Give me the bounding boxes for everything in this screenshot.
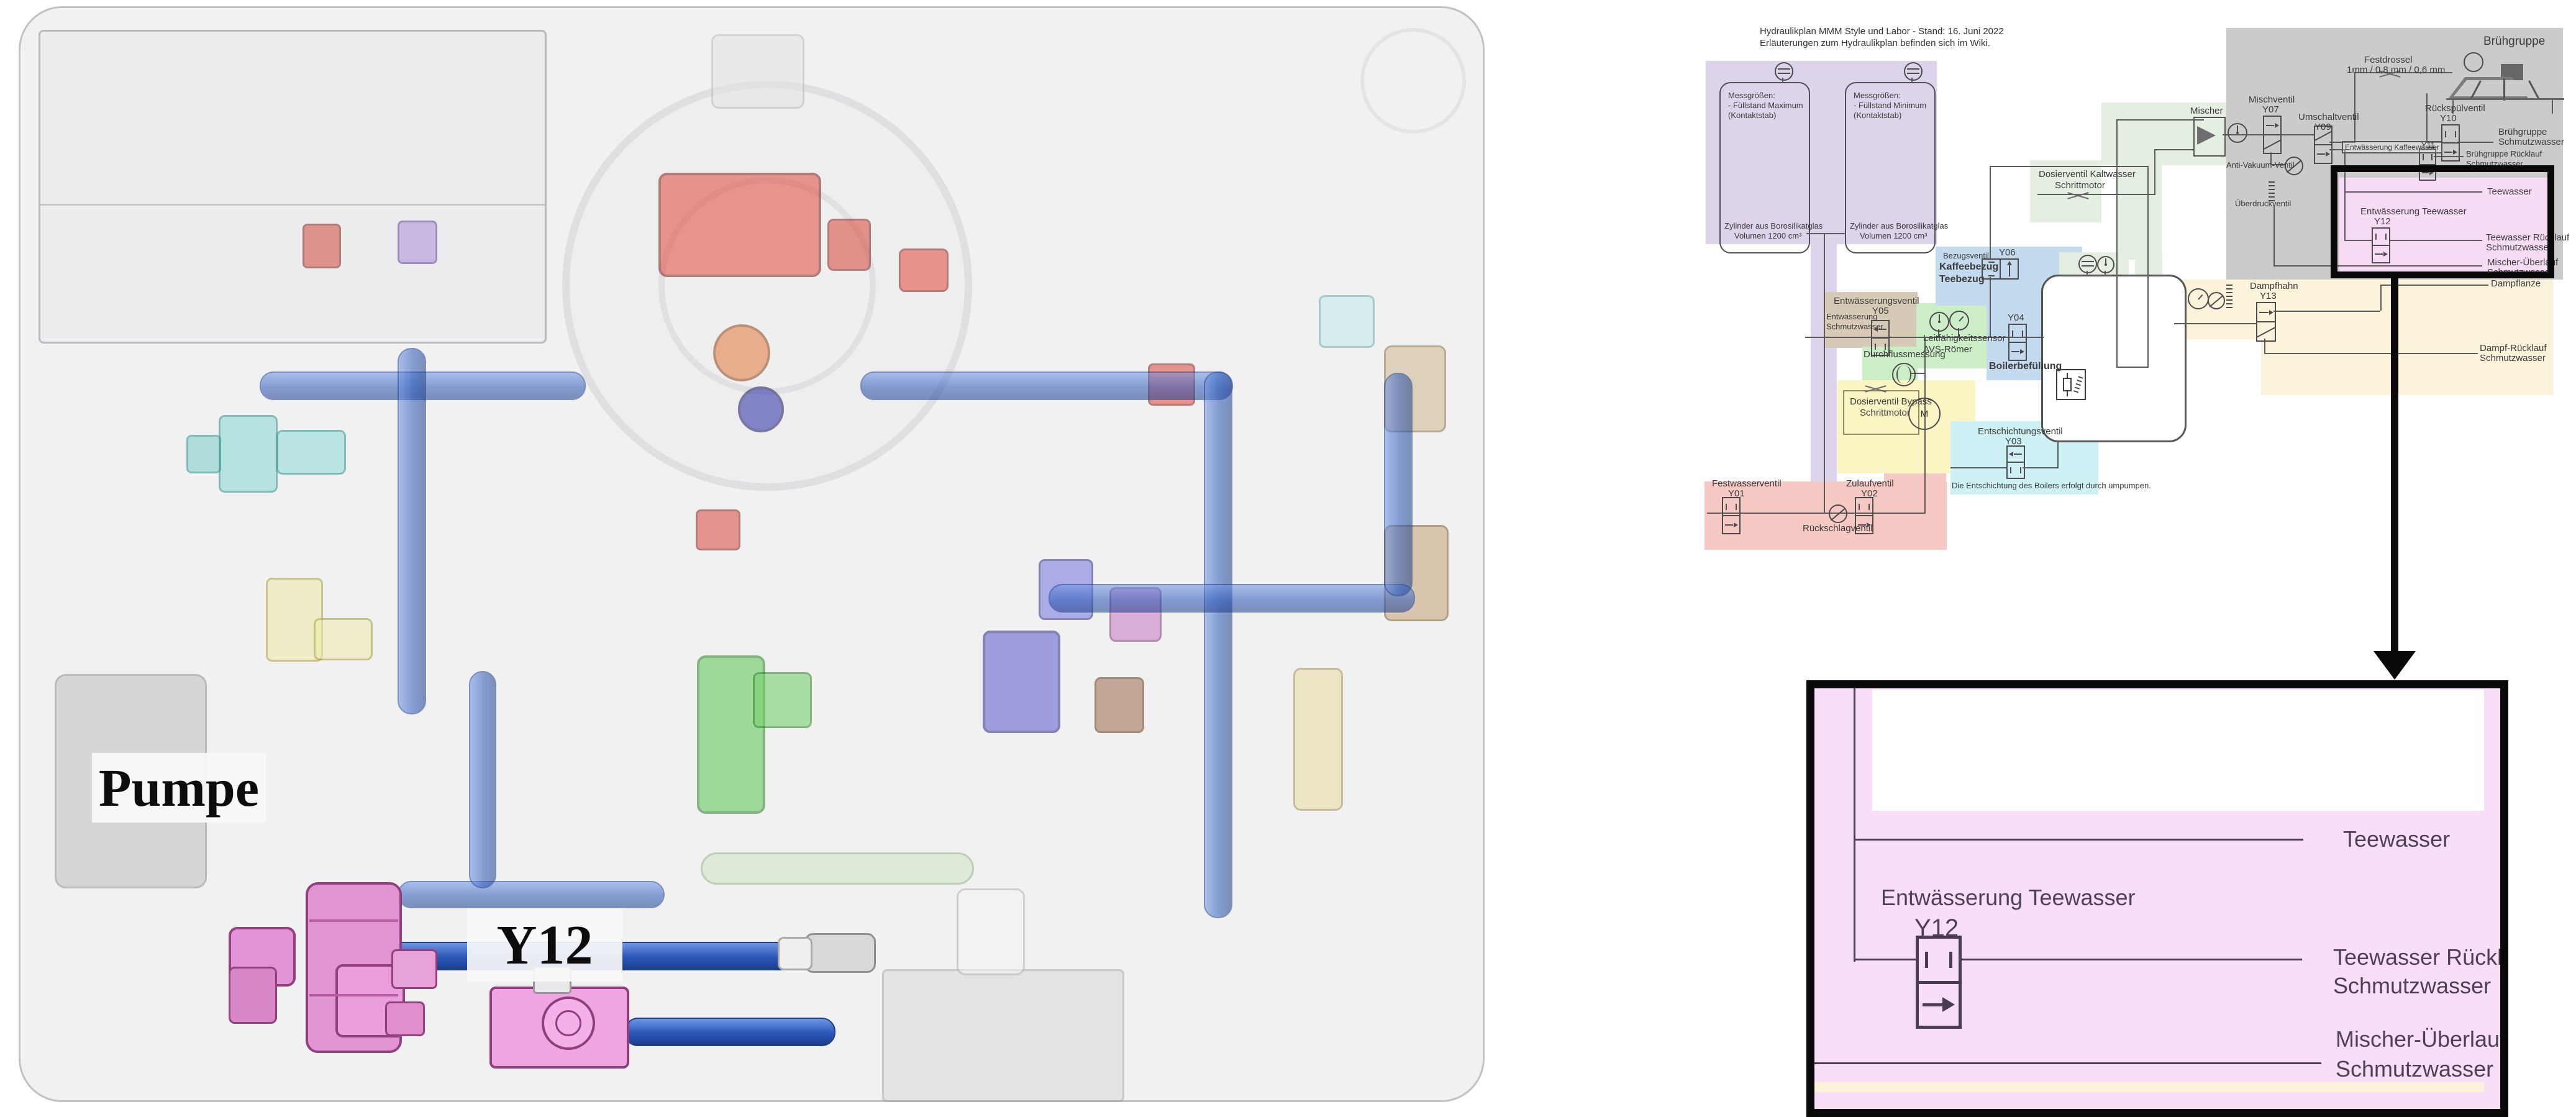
pump-ring-1 — [309, 919, 398, 922]
detail-tea-return-2: Schmutzwasser — [2333, 973, 2491, 999]
valve-y01 — [1722, 497, 1741, 534]
corner-circle — [1360, 28, 1466, 134]
bypass-label-1: Dosierventil Bypass — [1850, 396, 1932, 408]
red-fitting-center — [696, 509, 740, 550]
detail-tea-return-1: Teewasser Rücklauf — [2333, 944, 2508, 970]
teal-fitting-b — [276, 430, 346, 475]
yellow-fitting-b — [314, 618, 373, 660]
detail-overflow-line — [1814, 1062, 2321, 1064]
pressure-sensor-icon — [1929, 312, 1949, 332]
valve-cell — [1919, 984, 1959, 1026]
brewgroup-strut — [2503, 78, 2505, 101]
contact-rod-icon — [1775, 62, 1793, 81]
pipe-line — [1950, 467, 2006, 468]
conductivity-label-1: Leitfähigkeitssensor — [1923, 333, 2006, 344]
detail-teewasser-line — [1854, 839, 2303, 841]
y01-label: Festwasserventil — [1712, 478, 1782, 490]
pipe-blue-vert-right — [1204, 372, 1232, 918]
indigo-block — [983, 631, 1060, 733]
y04-label: Boilerbefüllung — [1989, 360, 2062, 372]
bypass-label-2: Schrittmotor — [1860, 408, 1910, 419]
detail-valve-y12 — [1916, 936, 1962, 1029]
red-valve-block — [658, 173, 821, 277]
tank-left-measures: Messgrößen: — [1728, 91, 1775, 101]
highlight-box — [2331, 165, 2554, 278]
pipe-line — [2116, 119, 2118, 275]
valve-cell — [2009, 343, 2026, 360]
flow-arrow-head — [1942, 997, 1955, 1012]
pipe-blue-lower-left — [398, 881, 665, 908]
y06-tea: Teebezug — [1939, 273, 1985, 285]
detail-tea-supply: Teewasser — [2343, 826, 2450, 852]
brewgroup-trapezoid-inner — [2454, 80, 2528, 96]
y02-id: Y02 — [1861, 488, 1878, 499]
pipe-line — [2354, 72, 2355, 142]
pip e-line — [2380, 285, 2382, 311]
steam-check-icon — [2208, 292, 2225, 309]
white-connector-ring — [778, 937, 812, 970]
pipe-line — [2117, 119, 2204, 121]
contact-rod-icon — [1904, 62, 1923, 81]
pipe-line — [2023, 467, 2059, 468]
anti-vacuum-label: Anti-Vakuum-Ventil — [2226, 160, 2295, 170]
pipe-line — [1990, 166, 2148, 167]
pipe-line — [2457, 142, 2493, 143]
pipe-line — [1990, 277, 1991, 337]
mixer-gauge-icon — [2228, 123, 2247, 143]
brew-leg — [2552, 100, 2553, 114]
y01-id: Y01 — [1728, 488, 1745, 499]
brewgroup-base — [2446, 98, 2564, 100]
detail-cream-strip — [1814, 1082, 2484, 1092]
valve-cell — [1723, 498, 1739, 516]
front-panel-seam — [40, 204, 545, 206]
region-steam-right — [2261, 280, 2553, 395]
y05-out2: Schmutzwasser — [1826, 322, 1883, 332]
y12-valve-dial-inner — [555, 1010, 581, 1036]
y03-id: Y03 — [2005, 436, 2022, 447]
pipe-blue-mid-right — [860, 372, 1233, 400]
schematic-subtitle: Erläuterungen zum Hydraulikplan befinden… — [1760, 38, 1990, 49]
pipe-line — [2273, 311, 2380, 312]
valve-cell — [2008, 463, 2024, 478]
gray-box-bottom — [882, 969, 1124, 1102]
pipe-line — [2174, 323, 2256, 324]
pipe-line — [2273, 205, 2275, 265]
detail-overflow-1: Mischer-Überlauf — [2336, 1026, 2506, 1052]
detail-pipe-line — [1854, 688, 1855, 962]
y07-id: Y07 — [2262, 104, 2279, 116]
boiler-riser — [2116, 275, 2118, 368]
check-valve-label: Rückschlagventil — [1803, 523, 1873, 534]
pipe-line — [1990, 166, 1991, 258]
detail-pipe-line — [1854, 959, 1916, 960]
y04-id: Y04 — [2008, 312, 2024, 324]
green-tee — [753, 672, 812, 728]
valve-cell — [2315, 145, 2331, 163]
valve-y13 — [2256, 302, 2276, 342]
silver-connector — [804, 933, 876, 973]
valve-cell — [2442, 144, 2459, 160]
pipe-line — [2154, 149, 2155, 195]
y05-out1: Entwässerung — [1826, 312, 1877, 322]
valve-y03 — [2006, 445, 2025, 479]
y06-id: Y06 — [1999, 247, 2016, 258]
detail-overflow-2: Schmutzwasser — [2336, 1056, 2493, 1082]
pipe-line-steam-return — [2264, 353, 2478, 354]
top-cylinder — [711, 34, 804, 109]
detail-callout-box: Teewasser Entwässerung Teewasser Y12 Tee… — [1806, 680, 2508, 1117]
valve-y07 — [2263, 116, 2282, 154]
violet-fitting — [398, 221, 437, 264]
mixer-triangle-icon — [2197, 126, 2216, 145]
steam-return-2: Schmutzwasser — [2480, 353, 2546, 364]
bypass-throttle-icon — [1866, 381, 1885, 395]
y10-out2: Schmutzwasser — [2498, 137, 2564, 148]
gauge-icon — [1949, 311, 1969, 331]
port-tick — [1925, 952, 1928, 968]
pipe-line — [2278, 134, 2314, 135]
steam-tap-id: Y13 — [2260, 291, 2277, 302]
pump-ring-2 — [309, 994, 398, 996]
tank-right-rod: (Kontaktstab) — [1854, 111, 1901, 121]
teal-fitting-a — [219, 415, 278, 493]
cyan-fitting-right — [1319, 295, 1375, 348]
valve-cell — [2008, 447, 2024, 463]
tank-right-min: - Füllstand Minimum — [1854, 101, 1926, 111]
overpressure-spring-icon — [2269, 179, 2275, 201]
brew-group-label: Brühgruppe — [2483, 35, 2545, 49]
tank-left-glass: Zylinder aus Borosilikatglas — [1724, 221, 1823, 231]
y11-id: Y11 — [2421, 140, 2435, 150]
tank-left-volume: Volumen 1200 cm³ — [1734, 231, 1801, 241]
pump-label: Pumpe — [99, 757, 259, 819]
pipe-line — [2426, 93, 2428, 142]
pipe-line — [2147, 166, 2149, 275]
y11-out1: Brühgruppe Rücklauf — [2466, 149, 2542, 159]
boiler-level-sensor-icon — [2078, 255, 2097, 273]
pipe-blue-pump-lower — [624, 1018, 835, 1046]
pipe-blue-vert-left — [398, 348, 426, 714]
steam-lance-label: Dampflanze — [2491, 278, 2541, 290]
callout-arrow-head-icon — [2373, 651, 2416, 680]
detail-pipe-line — [1962, 959, 2302, 960]
valve-cell — [1723, 516, 1739, 533]
pink-elbow-lower — [229, 967, 277, 1024]
tank-left-max: - Füllstand Maximum — [1728, 101, 1803, 111]
coldwater-label-1: Dosierventil Kaltwasser — [2039, 169, 2136, 180]
pipe-blue-upper-right — [1049, 584, 1415, 613]
page: { "colors": { "purple_region":"#ddd3ea",… — [0, 0, 2576, 1103]
blue-sphere-valve — [738, 386, 784, 432]
cream-column-right — [1293, 668, 1343, 811]
pink-fitting-b — [385, 1001, 425, 1036]
boiler-riser — [2147, 275, 2149, 368]
pipe-line — [2057, 442, 2059, 468]
port-tick — [1949, 952, 1952, 968]
schematic-title: Hydraulikplan MMM Style und Labor - Stan… — [1760, 26, 2004, 37]
tank-right-glass: Zylinder aus Borosilikatglas — [1850, 221, 1948, 231]
red-elbow — [899, 248, 949, 292]
heating-element-icon — [2056, 369, 2086, 400]
red-fitting-left — [303, 224, 341, 268]
coldwater-label-2: Schrittmotor — [2055, 180, 2105, 191]
valve-y10 — [2441, 124, 2460, 162]
overpressure-label: Überdruckventil — [2235, 199, 2291, 209]
valve-cell — [1856, 498, 1872, 516]
conductivity-label-2: AVS-Römer — [1923, 344, 1972, 355]
pink-fitting-a — [391, 949, 437, 989]
steam-gauge-icon — [2188, 288, 2209, 309]
valve-cell — [2009, 325, 2026, 343]
pipe-blue-vert-mid — [469, 671, 496, 888]
pump-label-box: Pumpe — [92, 753, 266, 823]
heater-resistor — [2063, 378, 2072, 391]
pipe-line — [2037, 194, 2155, 195]
pipe-line — [1806, 233, 1846, 234]
valve-cell — [2001, 260, 2018, 278]
heater-squiggle — [2073, 375, 2083, 393]
pipe-line — [1824, 234, 1825, 513]
brown-fitting — [1095, 677, 1144, 733]
valve-cell — [2264, 117, 2280, 135]
steam-safety-icon — [2226, 283, 2232, 308]
valve-cell — [2257, 303, 2275, 322]
y09-id: Y09 — [2314, 122, 2331, 133]
boiler-vessel — [2041, 275, 2187, 442]
front-panel — [39, 30, 547, 344]
y03-note: Die Entschichtung des Boilers erfolgt du… — [1952, 481, 2151, 491]
check-valve-icon — [1829, 504, 1847, 523]
flow-meter-icon — [1892, 363, 1916, 386]
tank-right-volume: Volumen 1200 cm³ — [1860, 231, 1927, 241]
teal-fitting-c — [186, 435, 221, 473]
tank-left-rod: (Kontaktstab) — [1728, 111, 1776, 121]
drossel-label-2: 1mm / 0,8 mm / 0,6 mm — [2347, 65, 2445, 76]
valve-cell — [2257, 322, 2275, 340]
boiler-temp-sensor-icon — [2097, 256, 2114, 273]
tank-right-measures: Messgrößen: — [1854, 91, 1901, 101]
y12-label-box: Y12 — [467, 908, 622, 982]
flow-arrow-line — [1923, 1003, 1942, 1006]
boiler-riser — [2116, 367, 2149, 368]
callout-arrow-shaft — [2391, 278, 2398, 651]
valve-cell — [2442, 125, 2459, 144]
orange-valve-circle — [713, 324, 770, 381]
brewgroup-gauge — [2464, 52, 2483, 72]
detail-white-inset — [1872, 690, 2484, 811]
pipe-blue-vert-far-right — [1384, 373, 1413, 596]
y06-coffee: Kaffeebezug — [1939, 261, 1998, 273]
detail-y12-id: Y12 — [1914, 914, 1959, 942]
valve-y04 — [2008, 324, 2027, 361]
pale-green-pipe — [701, 852, 974, 885]
mixer-label: Mischer — [2190, 106, 2223, 117]
white-cylinder-bottom — [957, 888, 1025, 975]
y12-label: Y12 — [497, 913, 593, 977]
y06-label: Bezugsventil — [1943, 251, 1989, 261]
red-tee — [827, 219, 871, 271]
detail-tea-drain: Entwässerung Teewasser — [1881, 885, 2136, 911]
valve-cell — [1919, 939, 1959, 984]
y10-id: Y10 — [2440, 113, 2457, 124]
pipe-line — [2154, 149, 2194, 150]
valve-cell — [2264, 135, 2280, 153]
